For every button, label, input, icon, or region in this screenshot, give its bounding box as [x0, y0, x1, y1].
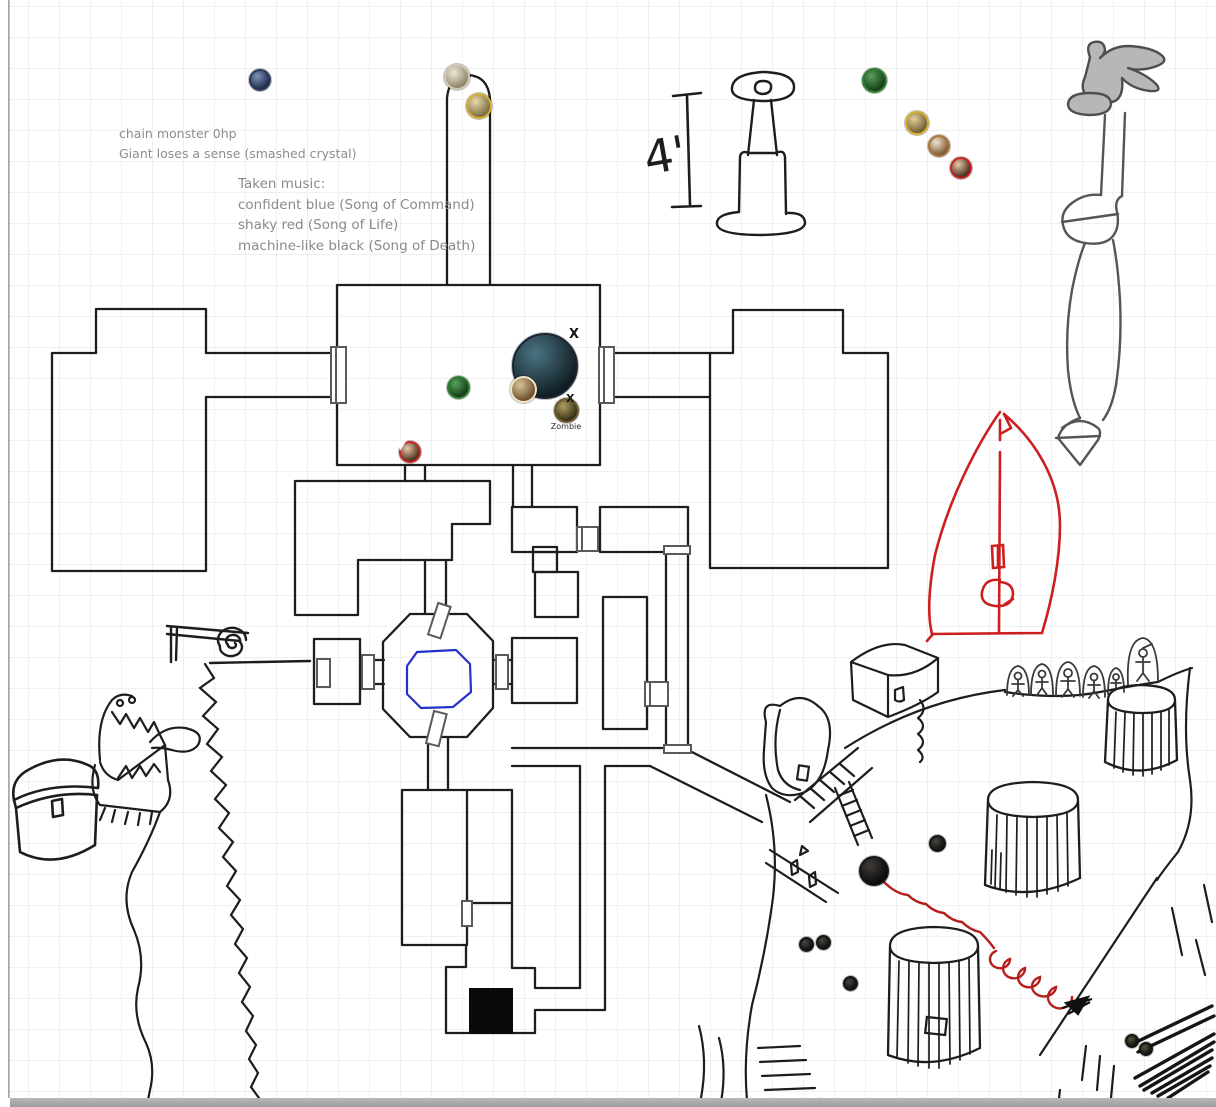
left-corridor[interactable]: [206, 353, 331, 397]
blue-octagon-marker[interactable]: [407, 650, 471, 708]
door-markers[interactable]: [317, 347, 691, 926]
long-vertical-corridor[interactable]: [580, 766, 605, 1010]
ground-hatches: [758, 1046, 820, 1101]
door-right-wing[interactable]: [599, 347, 614, 403]
measurement-label: 4': [640, 125, 691, 185]
combat-note-line1: chain monster 0hp: [119, 124, 356, 144]
cylinder-middle: [985, 782, 1080, 892]
measurement-sketch[interactable]: 4': [640, 93, 701, 207]
token-dark-small-2[interactable]: [799, 937, 814, 952]
treasure-chest-sketch[interactable]: [13, 760, 98, 860]
token-dark-small-3[interactable]: [816, 935, 831, 950]
token-nameplate: Zombie: [551, 422, 581, 431]
music-item-3: machine-like black (Song of Death): [238, 236, 475, 257]
token-portrait-green[interactable]: [862, 68, 887, 93]
ladder-sketch: [835, 782, 872, 845]
room-A[interactable]: [512, 507, 577, 552]
token-portrait-red[interactable]: [950, 157, 972, 179]
right-corridor[interactable]: [615, 353, 710, 397]
door-F-G[interactable]: [645, 682, 668, 706]
token-portrait-cream[interactable]: [510, 376, 537, 403]
token-portrait-green-2[interactable]: [447, 376, 470, 399]
turn-indicator-notch: [398, 440, 409, 451]
token-portrait-red-2[interactable]: [399, 441, 421, 463]
cliff-hatches: [1058, 885, 1212, 1107]
music-item-2: shaky red (Song of Life): [238, 215, 475, 236]
token-portrait-yellow[interactable]: [905, 111, 929, 135]
house-sketch: [851, 644, 938, 717]
sail-rect-detail: [992, 545, 1004, 568]
crane-spiral-sketch[interactable]: [167, 626, 310, 663]
token-portrait-pale[interactable]: [444, 64, 470, 90]
token-dark-small-4[interactable]: [843, 976, 858, 991]
room-D[interactable]: [533, 547, 557, 572]
door-bottom-room[interactable]: [462, 901, 472, 926]
mimic-creature-sketch[interactable]: [92, 695, 199, 825]
pillar-sketch[interactable]: [717, 72, 805, 235]
x-mark[interactable]: X: [569, 328, 579, 341]
tower-cylinders-sketch[interactable]: [888, 685, 1177, 1068]
house-door: [895, 687, 904, 702]
door-octagon-top[interactable]: [428, 603, 451, 638]
left-wing-room[interactable]: [52, 309, 206, 571]
room-F-tall[interactable]: [603, 597, 647, 729]
statue-niches-sketch[interactable]: [1007, 638, 1158, 698]
right-cliff-diagonal: [1040, 878, 1157, 1055]
wall-with-doors: [766, 850, 838, 902]
combat-note-line2: Giant loses a sense (smashed crystal): [119, 144, 356, 164]
whiteboard-app: { "notes": { "combat_line1": "chain mons…: [0, 0, 1216, 1107]
sail-mast-line: [999, 420, 1000, 632]
door-octagon-bottom[interactable]: [426, 711, 447, 746]
hall-to-roomA-corridor[interactable]: [513, 465, 532, 507]
cylinder-bottom: [888, 927, 980, 1062]
hill-ridge: [845, 690, 1005, 748]
token-portrait-tan[interactable]: [928, 135, 950, 157]
combat-notes[interactable]: chain monster 0hp Giant loses a sense (s…: [119, 124, 356, 164]
right-wing-room[interactable]: [710, 310, 888, 568]
x-mark[interactable]: X: [566, 393, 574, 404]
token-portrait-blue[interactable]: [249, 69, 271, 91]
music-title: Taken music:: [238, 174, 475, 195]
token-dark-large[interactable]: [859, 856, 889, 886]
corridor-G[interactable]: [666, 554, 688, 745]
map-drawing-layer: 4': [0, 0, 1216, 1107]
room-E[interactable]: [535, 572, 578, 617]
hall-to-midroom-door[interactable]: [405, 465, 425, 481]
hill-left-edge: [746, 795, 775, 1100]
octagon-right-room[interactable]: [512, 638, 577, 703]
door-A-C[interactable]: [577, 527, 598, 551]
black-pit-square[interactable]: [469, 988, 513, 1034]
horizontal-scrollbar[interactable]: [10, 1098, 1216, 1107]
door-G-bottom[interactable]: [664, 745, 691, 753]
token-dark-small-1[interactable]: [929, 835, 946, 852]
music-item-1: confident blue (Song of Command): [238, 195, 475, 216]
lower-horizontal-corridor[interactable]: [512, 748, 666, 766]
door-octagon-left-room[interactable]: [317, 659, 330, 687]
mid-left-room[interactable]: [295, 481, 490, 615]
door-G-top[interactable]: [664, 546, 690, 554]
music-notes[interactable]: Taken music: confident blue (Song of Com…: [238, 174, 475, 256]
sail-circle-detail: [982, 580, 1013, 606]
sword-collar: [1068, 93, 1111, 115]
door-octagon-right[interactable]: [496, 655, 508, 689]
door-left-wing[interactable]: [331, 347, 346, 403]
token-dark-small-5[interactable]: [1125, 1034, 1139, 1048]
giant-sword-sketch[interactable]: [1056, 42, 1164, 465]
token-portrait-gold[interactable]: [466, 93, 492, 119]
bottom-room-upper[interactable]: [402, 790, 580, 988]
door-octagon-left[interactable]: [362, 655, 374, 689]
token-dark-small-6[interactable]: [1139, 1042, 1153, 1056]
red-sail-sketch[interactable]: [927, 412, 1060, 641]
